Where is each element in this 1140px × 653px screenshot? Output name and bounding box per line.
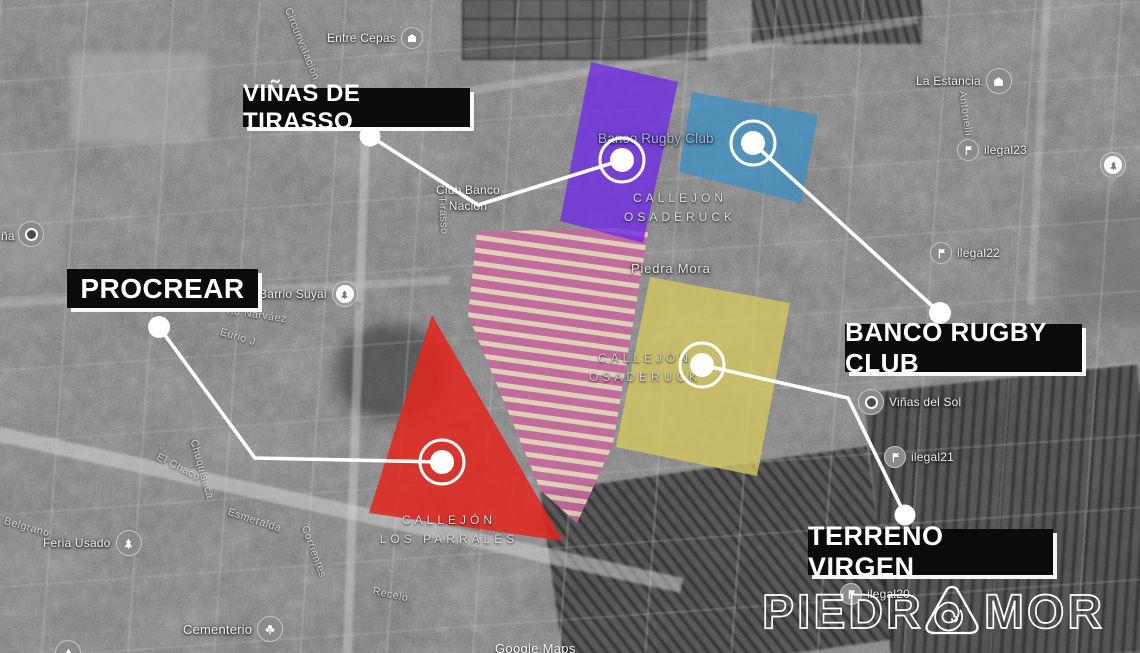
callout-banco-rugby-club: BANCO RUGBY CLUB	[845, 324, 1082, 372]
road-label: CALLEJÓNOSADERUCK	[605, 189, 755, 226]
street-label: Tirasso	[436, 196, 450, 235]
locality-label: Piedra Mora	[631, 261, 711, 276]
street-label: ña	[1, 229, 15, 243]
flag-icon	[957, 139, 979, 161]
poi-label: La Estancia	[916, 74, 981, 88]
building-icon	[401, 27, 423, 49]
poi-label: ilegal23	[984, 143, 1027, 157]
place-pin-icon	[18, 221, 44, 247]
poi-label: ilegal22	[957, 246, 1000, 260]
road-label: CALLEJÓNOSADERUCK	[570, 349, 720, 386]
tree-pin-tail	[1106, 177, 1118, 186]
spiral-triangle-icon	[927, 587, 978, 633]
place-pin-icon	[858, 389, 884, 415]
building-icon	[986, 68, 1012, 94]
tree-icon	[116, 530, 142, 556]
poi-label: ilegal21	[911, 450, 954, 464]
poi-label: Entre Cepas	[327, 31, 396, 45]
flag-icon	[884, 446, 906, 468]
poi-label: Cementerio	[183, 622, 252, 637]
logo-text-left: PIEDR	[762, 586, 924, 639]
piedra-mora-logo: PIEDR MORA	[760, 582, 1105, 644]
poi-label: Viñas del Sol	[889, 395, 961, 409]
logo-text-right: MORA	[984, 586, 1105, 639]
tree-pin-icon	[1100, 152, 1126, 178]
callout-procrear: PROCREAR	[67, 269, 258, 308]
poi-label: Barrio Suyai	[259, 287, 327, 301]
callout-vinas-de-tirasso: VIÑAS DE TIRASSO	[243, 88, 470, 127]
poi-label: Feria Usado	[43, 536, 111, 550]
google-maps-watermark: Google Maps	[495, 641, 576, 653]
callout-terreno-virgen: TERRENO VIRGEN	[808, 529, 1053, 575]
place-label: Banco Rugby Club	[598, 131, 714, 146]
satellite-map-canvas: Entre Cepas La Estancia ilegal23 ilegal2…	[0, 0, 1140, 653]
road-label: CALLEJÓNLOS PARRALES	[360, 511, 538, 548]
cemetery-icon	[257, 616, 283, 642]
tree-pin-tail	[352, 302, 364, 311]
flag-icon	[930, 242, 952, 264]
banco-rugby-club-parcel	[679, 92, 818, 203]
